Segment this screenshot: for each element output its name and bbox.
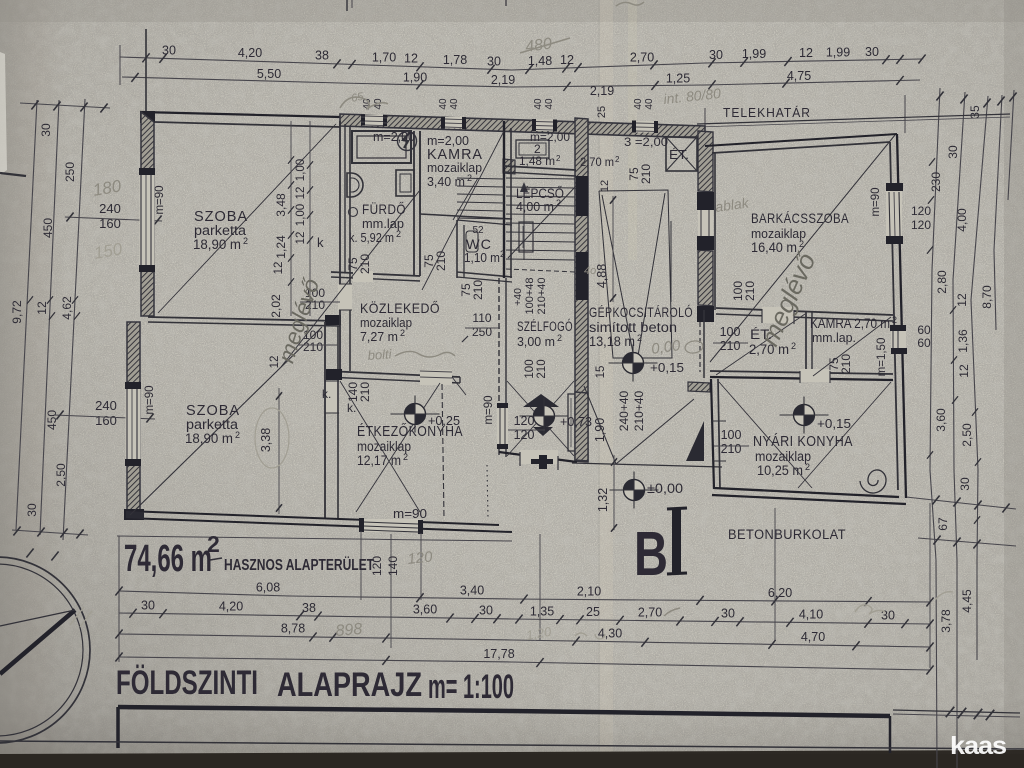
svg-text:1,90: 1,90 xyxy=(593,418,607,442)
svg-text:2,19: 2,19 xyxy=(590,84,614,98)
svg-text:ALAPRAJZ: ALAPRAJZ xyxy=(277,666,422,704)
svg-text:3,48: 3,48 xyxy=(274,193,288,217)
svg-text:210+40: 210+40 xyxy=(536,277,548,314)
svg-text:2: 2 xyxy=(207,531,220,557)
svg-text:18,90 m: 18,90 m xyxy=(185,431,233,446)
svg-text:12: 12 xyxy=(404,51,418,65)
svg-text:12,17 m: 12,17 m xyxy=(357,453,401,468)
svg-text:240+40: 240+40 xyxy=(617,390,631,431)
svg-text:2: 2 xyxy=(556,154,561,163)
svg-text:parketta: parketta xyxy=(194,223,247,238)
svg-text:GÉPKOCSITÁROLÓ: GÉPKOCSITÁROLÓ xyxy=(589,304,693,320)
svg-text:mozaiklap: mozaiklap xyxy=(755,449,811,464)
svg-text:2,19: 2,19 xyxy=(491,73,515,87)
svg-text:m=90: m=90 xyxy=(870,187,882,216)
svg-text:4,20: 4,20 xyxy=(238,46,262,60)
svg-text:12: 12 xyxy=(295,187,307,200)
svg-text:2: 2 xyxy=(799,239,804,249)
svg-text:m=90: m=90 xyxy=(154,185,166,214)
svg-text:3 =2,00: 3 =2,00 xyxy=(624,135,668,149)
svg-text:2: 2 xyxy=(805,462,810,472)
svg-text:m=90: m=90 xyxy=(144,385,156,414)
svg-text:FÖLDSZINTI: FÖLDSZINTI xyxy=(116,664,258,702)
svg-text:m=90: m=90 xyxy=(393,506,427,521)
svg-text:2: 2 xyxy=(403,452,408,462)
svg-text:120: 120 xyxy=(514,414,535,428)
svg-text:250: 250 xyxy=(472,325,492,339)
svg-text:2: 2 xyxy=(557,333,562,343)
svg-text:bolti: bolti xyxy=(367,346,393,363)
svg-text:3,60: 3,60 xyxy=(934,408,948,432)
svg-text:4,10: 4,10 xyxy=(799,608,823,622)
svg-text:2,70: 2,70 xyxy=(638,606,662,620)
svg-text:3,78: 3,78 xyxy=(939,609,953,633)
svg-text:110: 110 xyxy=(472,311,491,325)
svg-text:210: 210 xyxy=(721,442,742,456)
svg-text:KAMRA 2,70 m: KAMRA 2,70 m xyxy=(810,316,890,331)
svg-text:210: 210 xyxy=(839,354,853,374)
svg-text:12: 12 xyxy=(560,53,574,67)
svg-text:210: 210 xyxy=(471,280,485,300)
svg-text:2: 2 xyxy=(615,155,620,164)
svg-text:+0,73: +0,73 xyxy=(560,414,592,429)
svg-text:120: 120 xyxy=(911,218,931,232)
svg-text:2,70: 2,70 xyxy=(630,50,654,64)
svg-text:NYÁRI KONYHA: NYÁRI KONYHA xyxy=(753,433,853,450)
svg-text:4,62: 4,62 xyxy=(60,296,74,320)
svg-text:2: 2 xyxy=(637,333,642,343)
svg-text:12: 12 xyxy=(955,293,969,307)
svg-text:3,38: 3,38 xyxy=(259,428,273,452)
svg-text:KÖZLEKEDŐ: KÖZLEKEDŐ xyxy=(360,299,440,316)
svg-text:38: 38 xyxy=(315,48,329,62)
svg-text:k: k xyxy=(317,235,324,250)
svg-text:2,50: 2,50 xyxy=(54,463,68,487)
svg-text:m= 1:100: m= 1:100 xyxy=(428,668,514,706)
svg-text:1,90: 1,90 xyxy=(403,71,427,85)
svg-text:15: 15 xyxy=(595,366,607,379)
svg-text:100: 100 xyxy=(720,325,741,339)
svg-text:TELEKHATÁR: TELEKHATÁR xyxy=(723,105,811,120)
svg-text:BARKÁCSSZOBA: BARKÁCSSZOBA xyxy=(751,210,849,226)
svg-text:2: 2 xyxy=(235,430,240,440)
svg-text:30: 30 xyxy=(946,145,960,159)
svg-text:120: 120 xyxy=(407,548,434,568)
svg-text:12: 12 xyxy=(273,262,285,275)
svg-text:8,70: 8,70 xyxy=(980,285,994,309)
svg-text:25: 25 xyxy=(586,605,600,619)
svg-text:4,00 m: 4,00 m xyxy=(516,199,554,214)
svg-text:30: 30 xyxy=(709,48,723,62)
svg-text:240: 240 xyxy=(95,398,117,413)
svg-text:FÜRDŐ: FÜRDŐ xyxy=(362,200,406,217)
svg-text:6,08: 6,08 xyxy=(256,580,280,594)
svg-text:160: 160 xyxy=(95,413,117,428)
svg-text:2: 2 xyxy=(500,249,505,259)
svg-text:250: 250 xyxy=(63,162,77,182)
svg-text:30: 30 xyxy=(479,604,493,618)
svg-text:k.: k. xyxy=(322,387,331,401)
svg-text:1,24: 1,24 xyxy=(274,235,288,259)
svg-text:60: 60 xyxy=(917,336,931,350)
svg-text:230: 230 xyxy=(929,172,943,192)
svg-text:1,00: 1,00 xyxy=(295,159,307,181)
svg-text:4,70: 4,70 xyxy=(801,630,825,644)
svg-text:2: 2 xyxy=(467,173,472,183)
svg-text:210: 210 xyxy=(303,340,323,354)
svg-text:BETONBURKOLAT: BETONBURKOLAT xyxy=(728,527,846,542)
svg-text:74,66 m: 74,66 m xyxy=(124,538,212,580)
svg-text:6,20: 6,20 xyxy=(768,586,792,600)
svg-text:898: 898 xyxy=(335,621,363,640)
svg-text:210: 210 xyxy=(536,359,548,378)
svg-text:mozaiklap: mozaiklap xyxy=(427,160,482,175)
svg-text:+40: +40 xyxy=(512,288,524,306)
svg-text:12: 12 xyxy=(957,364,971,378)
svg-text:100+48: 100+48 xyxy=(524,277,536,314)
svg-text:30: 30 xyxy=(721,607,735,621)
svg-text:13,18 m: 13,18 m xyxy=(589,334,635,349)
svg-text:40: 40 xyxy=(644,98,655,110)
svg-text:12: 12 xyxy=(599,180,611,192)
svg-text:210: 210 xyxy=(743,281,757,301)
svg-text:18,90 m: 18,90 m xyxy=(193,237,241,252)
svg-text:2: 2 xyxy=(243,236,248,246)
svg-text:1,36: 1,36 xyxy=(956,329,970,353)
svg-text:HASZNOS ALAPTERÜLET: HASZNOS ALAPTERÜLET xyxy=(224,555,374,574)
svg-text:450: 450 xyxy=(41,218,55,238)
svg-text:±0,00: ±0,00 xyxy=(647,480,683,496)
svg-text:4,45: 4,45 xyxy=(960,589,974,613)
svg-text:240: 240 xyxy=(99,201,121,216)
svg-text:+0,25: +0,25 xyxy=(428,413,460,428)
svg-text:1,48 m: 1,48 m xyxy=(519,154,555,168)
svg-text:2,70 m: 2,70 m xyxy=(580,155,614,169)
svg-text:210+40: 210+40 xyxy=(632,390,646,431)
svg-text:30: 30 xyxy=(487,54,501,68)
svg-text:mozaiklap: mozaiklap xyxy=(751,226,806,241)
svg-text:4,00: 4,00 xyxy=(955,208,969,232)
svg-text:k. 5,92 m: k. 5,92 m xyxy=(349,230,394,245)
svg-text:52: 52 xyxy=(472,225,484,236)
svg-text:1,00: 1,00 xyxy=(295,204,307,226)
svg-text:25: 25 xyxy=(596,106,608,118)
svg-text:210: 210 xyxy=(639,164,653,184)
svg-text:2,50: 2,50 xyxy=(960,423,974,447)
svg-text:1,25: 1,25 xyxy=(666,71,690,85)
svg-text:simított beton: simított beton xyxy=(589,320,677,335)
svg-text:38: 38 xyxy=(302,601,316,615)
svg-text:3,40: 3,40 xyxy=(460,583,484,597)
svg-text:m=90: m=90 xyxy=(483,395,495,424)
svg-text:210: 210 xyxy=(358,382,372,402)
svg-text:35: 35 xyxy=(968,105,982,119)
svg-text:30: 30 xyxy=(25,503,39,517)
svg-text:67: 67 xyxy=(936,517,950,531)
svg-text:2,80: 2,80 xyxy=(935,270,949,294)
svg-text:m=2,00: m=2,00 xyxy=(373,130,415,144)
svg-text:100: 100 xyxy=(721,428,742,442)
svg-text:210: 210 xyxy=(720,339,741,353)
svg-text:3,00 m: 3,00 m xyxy=(517,334,555,349)
svg-text:100: 100 xyxy=(524,359,536,378)
svg-text:30: 30 xyxy=(958,477,972,491)
svg-text:+0,15: +0,15 xyxy=(817,416,851,431)
svg-text:40: 40 xyxy=(533,98,544,110)
svg-text:2: 2 xyxy=(892,315,897,325)
svg-text:7,27 m: 7,27 m xyxy=(360,329,398,344)
svg-text:5,50: 5,50 xyxy=(257,67,281,81)
svg-text:1,10 m: 1,10 m xyxy=(464,250,500,265)
svg-text:3,60: 3,60 xyxy=(413,603,437,617)
svg-text:40: 40 xyxy=(449,98,460,110)
svg-text:1,32: 1,32 xyxy=(596,488,610,512)
svg-text:parketta: parketta xyxy=(186,417,239,432)
svg-text:m=1,50: m=1,50 xyxy=(876,338,888,377)
svg-text:120: 120 xyxy=(911,204,931,218)
svg-text:30: 30 xyxy=(162,44,176,58)
svg-text:2: 2 xyxy=(791,341,796,351)
svg-text:30: 30 xyxy=(141,598,155,612)
svg-text:ÉT.: ÉT. xyxy=(669,147,689,162)
svg-text:40: 40 xyxy=(438,98,449,110)
svg-text:60: 60 xyxy=(917,323,931,337)
svg-text:4,20: 4,20 xyxy=(219,600,243,614)
svg-text:210: 210 xyxy=(358,254,372,274)
svg-text:kaas: kaas xyxy=(950,732,1006,760)
svg-text:17,78: 17,78 xyxy=(483,647,514,661)
svg-text:SZÉLFOGÓ: SZÉLFOGÓ xyxy=(517,319,573,334)
svg-text:1,78: 1,78 xyxy=(443,53,467,67)
svg-text:k.: k. xyxy=(347,401,356,415)
svg-text:1,35: 1,35 xyxy=(530,604,554,618)
svg-text:1,70: 1,70 xyxy=(372,51,396,65)
svg-text:3,40 m: 3,40 m xyxy=(427,174,465,189)
svg-text:12: 12 xyxy=(799,46,813,60)
svg-text:10,25 m: 10,25 m xyxy=(757,463,803,478)
svg-text:+0,15: +0,15 xyxy=(650,360,684,375)
svg-text:30: 30 xyxy=(39,123,53,137)
svg-text:1,99: 1,99 xyxy=(826,46,850,60)
svg-text:2: 2 xyxy=(556,198,561,208)
svg-text:140: 140 xyxy=(386,556,400,576)
svg-text:4,88: 4,88 xyxy=(595,264,609,288)
svg-text:mm.lap.: mm.lap. xyxy=(812,330,856,345)
svg-text:2,10: 2,10 xyxy=(577,585,601,599)
svg-text:2,02: 2,02 xyxy=(269,294,283,318)
svg-text:16,40 m: 16,40 m xyxy=(751,240,797,255)
svg-text:4,75: 4,75 xyxy=(787,69,811,83)
svg-text:B: B xyxy=(634,520,668,589)
svg-text:210: 210 xyxy=(434,251,448,271)
svg-text:8,78: 8,78 xyxy=(281,622,305,636)
svg-text:m=2,00: m=2,00 xyxy=(427,134,469,148)
svg-text:9,72: 9,72 xyxy=(10,300,24,324)
svg-text:1,99: 1,99 xyxy=(742,47,766,61)
svg-text:2: 2 xyxy=(400,328,405,338)
svg-text:40: 40 xyxy=(544,98,555,110)
svg-text:2: 2 xyxy=(396,229,401,239)
svg-text:1,48: 1,48 xyxy=(528,54,552,68)
svg-text:4o: 4o xyxy=(584,265,596,277)
svg-text:12: 12 xyxy=(295,232,307,245)
svg-text:40: 40 xyxy=(633,98,644,110)
svg-text:30: 30 xyxy=(865,45,879,59)
